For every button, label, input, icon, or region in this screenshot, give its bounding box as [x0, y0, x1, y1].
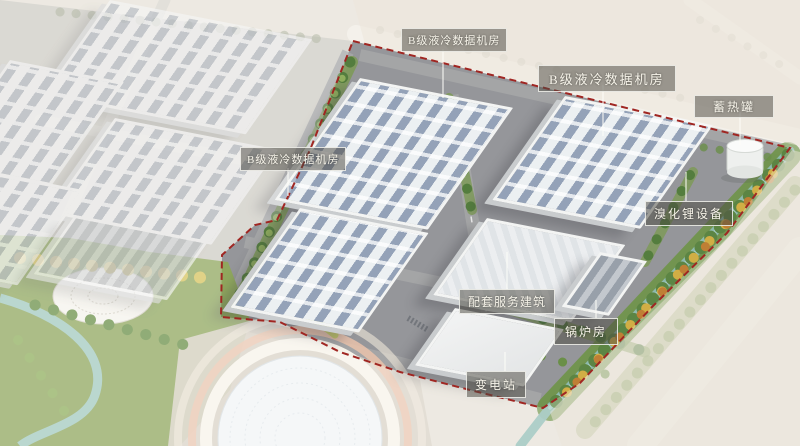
label-support-services-bldg: 配套服务建筑	[459, 289, 555, 314]
label-data-hall-right: B级液冷数据机房	[538, 65, 676, 92]
label-substation: 变电站	[466, 371, 526, 398]
annotation-labels: B级液冷数据机房 B级液冷数据机房 B级液冷数据机房 蓄热罐 溴化锂设备 配套服…	[0, 0, 800, 446]
label-boiler-house: 锅炉房	[554, 318, 618, 345]
label-heat-storage-tank: 蓄热罐	[694, 95, 774, 118]
site-rendering: B级液冷数据机房 B级液冷数据机房 B级液冷数据机房 蓄热罐 溴化锂设备 配套服…	[0, 0, 800, 446]
label-data-hall-top: B级液冷数据机房	[401, 28, 507, 52]
label-data-hall-left: B级液冷数据机房	[240, 147, 346, 171]
label-lithium-bromide-equip: 溴化锂设备	[645, 201, 733, 226]
